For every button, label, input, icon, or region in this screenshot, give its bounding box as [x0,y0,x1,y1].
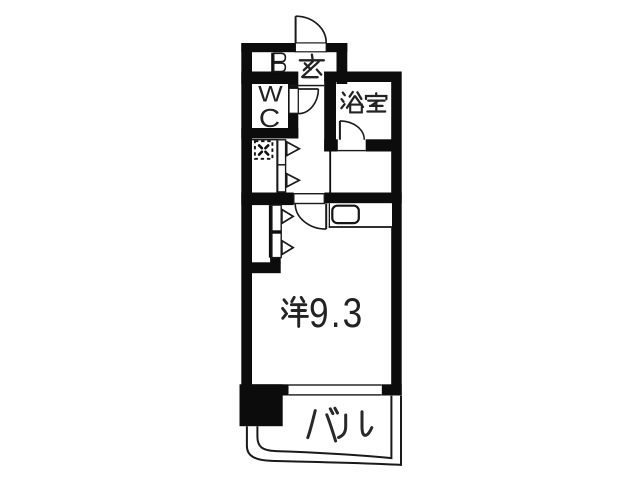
svg-text:9.3: 9.3 [309,290,364,337]
svg-text:C: C [259,105,280,133]
svg-text:W: W [258,82,283,107]
